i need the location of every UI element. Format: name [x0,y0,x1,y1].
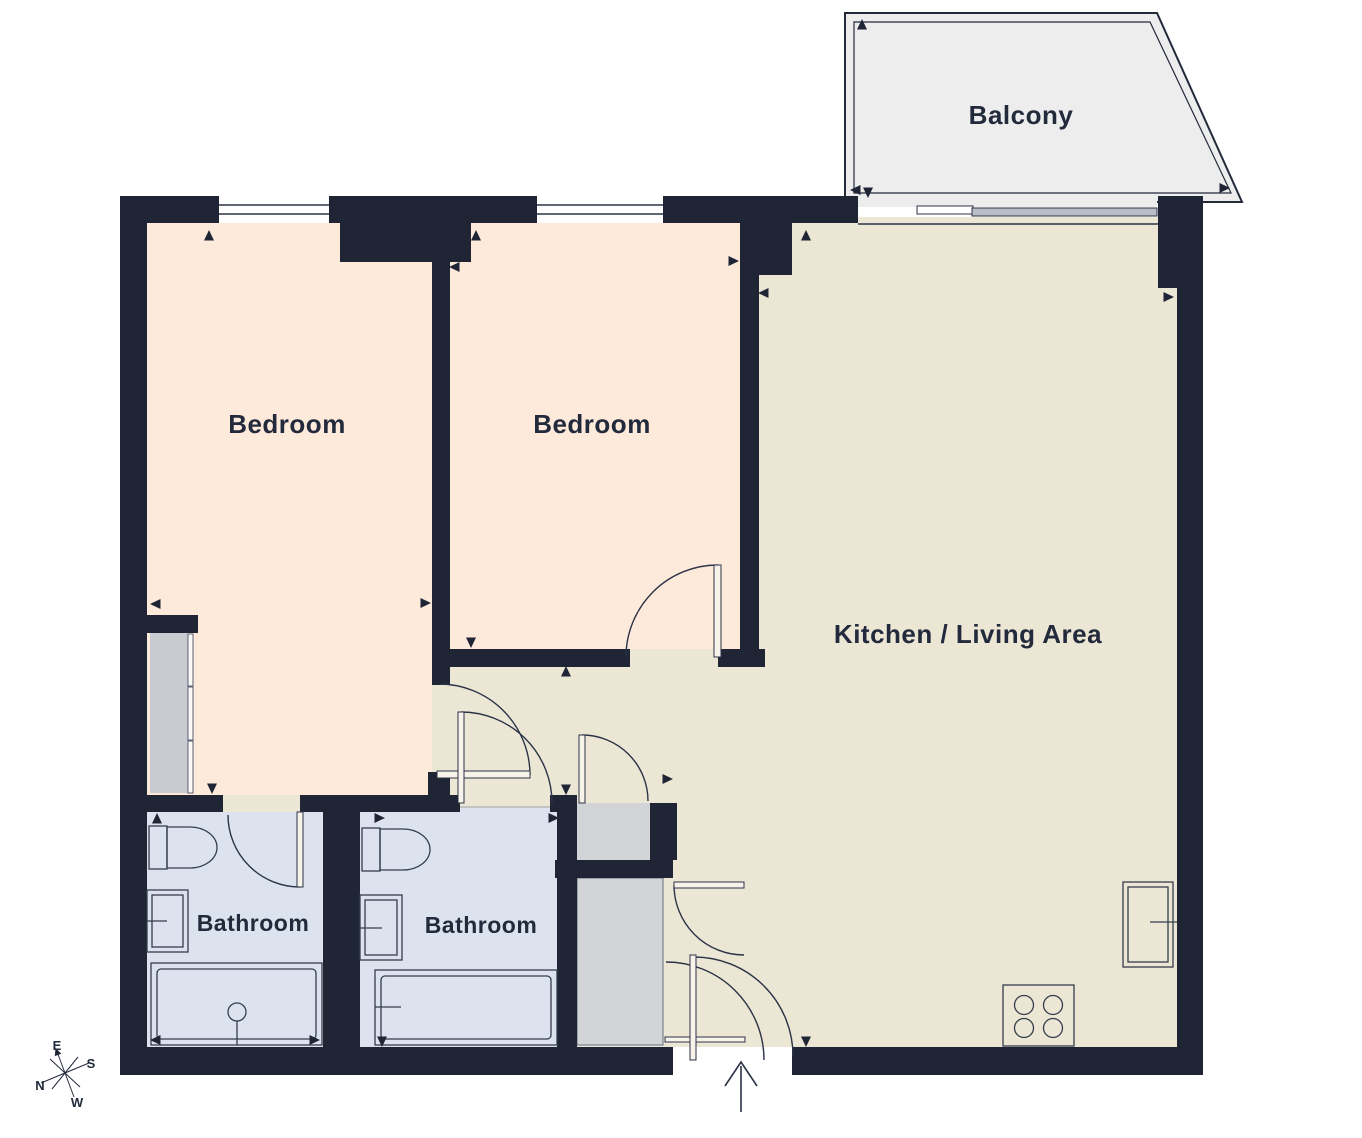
compass-east-label: E [53,1038,62,1053]
bathroom-2-label: Bathroom [425,912,538,938]
bedroom-1-label: Bedroom [228,409,346,439]
storage-closet-lower [577,878,663,1045]
wardrobe [150,633,193,793]
balcony-label: Balcony [969,100,1074,130]
compass-rose: E S N W [35,1038,95,1110]
window-bedroom-2 [537,196,663,223]
compass-west-label: W [71,1095,84,1110]
window-bedroom-1 [219,196,329,223]
storage-closet-upper [575,803,650,860]
kitchen-living-label: Kitchen / Living Area [834,619,1102,649]
compass-north-label: N [35,1078,44,1093]
floor-plan-page: E S N W Bedroom Bedroom Kitchen / Living… [0,0,1362,1138]
floor-plan: E S N W Bedroom Bedroom Kitchen / Living… [0,0,1362,1138]
bedroom-2-label: Bedroom [533,409,651,439]
entry-arrow [725,1062,757,1112]
bathroom-1-label: Bathroom [197,910,310,936]
compass-south-label: S [87,1056,96,1071]
